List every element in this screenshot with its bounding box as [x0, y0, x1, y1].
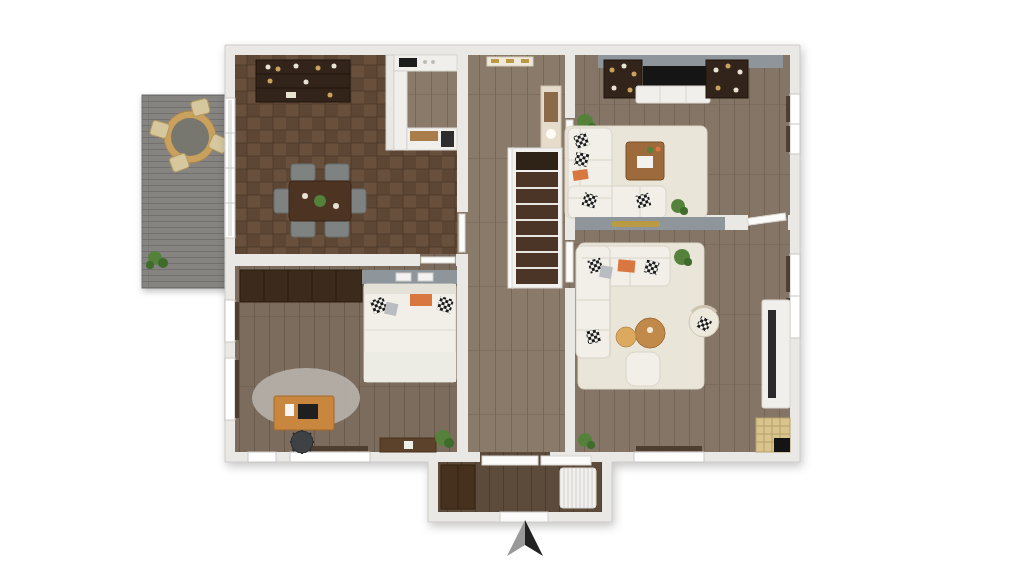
- pillow: [384, 302, 398, 316]
- window-sill: [786, 96, 790, 122]
- cat-tree: [756, 418, 790, 452]
- side-counter: [394, 71, 407, 150]
- dining-chair: [325, 220, 349, 237]
- floorplan-screenshot: [0, 0, 1024, 576]
- dining-chair: [349, 189, 366, 213]
- bed: [364, 284, 456, 382]
- room-deck: [142, 95, 232, 288]
- radiator: [560, 468, 596, 508]
- media-console: [762, 300, 790, 408]
- dining-chair: [291, 164, 315, 181]
- north-arrow-icon: [507, 520, 543, 556]
- bookshelf-right: [706, 60, 748, 98]
- door-leaf: [421, 257, 455, 263]
- throw-blanket: [572, 169, 588, 181]
- tall-cabinet: [541, 86, 561, 152]
- bar-sideboard: [256, 60, 350, 102]
- coat-rack: [487, 57, 533, 66]
- counter-cooktop: [394, 55, 457, 71]
- staircase: [508, 148, 562, 288]
- tv: [643, 66, 707, 88]
- interior-wall: [386, 55, 394, 150]
- window-sill: [235, 302, 239, 340]
- tv: [768, 310, 776, 398]
- paper: [285, 404, 294, 416]
- table-plant: [314, 195, 326, 207]
- dining-chair: [291, 220, 315, 237]
- wall-picture: [418, 273, 433, 281]
- throw-pillow: [586, 329, 601, 344]
- window-sill: [786, 126, 790, 152]
- throw-blanket: [410, 294, 432, 306]
- throw-blanket: [618, 259, 636, 272]
- window-sill: [235, 360, 239, 418]
- tv-console: [636, 86, 710, 103]
- entry-closet: [441, 465, 475, 509]
- entry-door: [500, 512, 548, 522]
- patio-door: [225, 98, 235, 238]
- room-kitchen-nook: [386, 55, 457, 150]
- desk: [274, 396, 334, 430]
- throw-pillow: [599, 265, 613, 279]
- throw-pillow: [574, 152, 589, 167]
- laptop: [637, 156, 653, 168]
- wardrobe: [240, 270, 362, 302]
- window: [634, 452, 704, 462]
- window-sill: [636, 446, 702, 451]
- window: [225, 300, 235, 342]
- wicker-chair: [689, 307, 719, 337]
- window: [248, 452, 276, 462]
- door-leaf: [482, 456, 538, 465]
- round-coffee-table: [616, 327, 636, 347]
- desk-chair: [290, 430, 314, 454]
- dining-chair: [274, 189, 291, 213]
- coffee-table: [626, 142, 664, 180]
- door-leaf: [566, 242, 573, 282]
- laptop: [298, 404, 318, 419]
- window: [225, 358, 235, 420]
- wall-picture: [396, 273, 411, 281]
- deck-table-top: [171, 118, 209, 156]
- wall-decor: [612, 221, 660, 227]
- window-sill: [786, 256, 790, 292]
- dining-chair: [325, 164, 349, 181]
- counter-oven: [407, 128, 457, 150]
- ottoman: [626, 352, 660, 386]
- pet-bed: [774, 438, 790, 452]
- floorplan-canvas: [0, 0, 1024, 576]
- shelf-item: [404, 441, 413, 449]
- door-leaf: [459, 214, 465, 252]
- door-leaf: [541, 456, 591, 465]
